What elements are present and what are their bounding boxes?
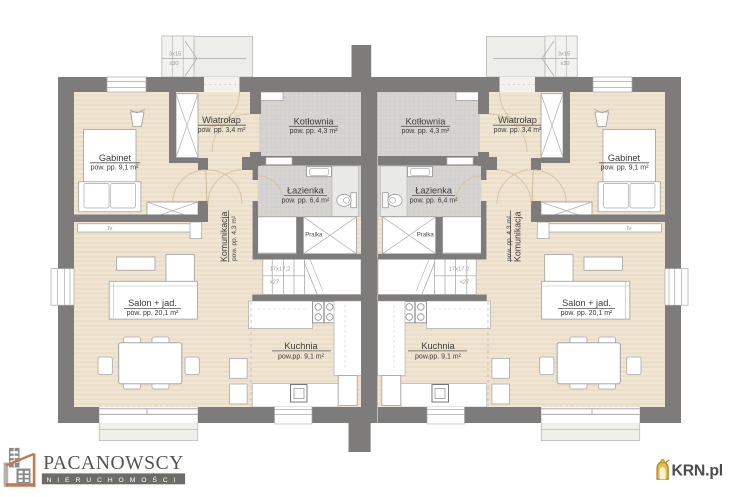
svg-text:Gabinet: Gabinet <box>99 153 132 163</box>
svg-text:Pralka: Pralka <box>417 233 435 239</box>
svg-text:pow. pp. 3,4 m²: pow. pp. 3,4 m² <box>198 127 247 134</box>
svg-text:17x17,2: 17x17,2 <box>449 267 470 273</box>
svg-text:pow.pp. 9,1 m²: pow.pp. 9,1 m² <box>415 354 462 361</box>
svg-text:Salon + jad.: Salon + jad. <box>562 298 611 308</box>
svg-text:17x17,2: 17x17,2 <box>270 267 291 273</box>
svg-text:x27: x27 <box>270 280 279 286</box>
svg-text:pow. pp. 20,1 m²: pow. pp. 20,1 m² <box>127 310 179 317</box>
svg-text:pow. pp. 6,4 m²: pow. pp. 6,4 m² <box>281 197 330 204</box>
svg-text:Komunikacja: Komunikacja <box>219 212 229 262</box>
svg-text:pow. pp. 9,1 m²: pow. pp. 9,1 m² <box>601 165 650 172</box>
svg-text:Komunikacja: Komunikacja <box>512 212 522 262</box>
svg-text:Kuchnia: Kuchnia <box>421 341 455 351</box>
svg-text:Kuchnia: Kuchnia <box>284 341 318 351</box>
svg-text:x30: x30 <box>560 61 569 67</box>
svg-text:pow. pp. 6,4 m²: pow. pp. 6,4 m² <box>410 197 459 204</box>
svg-text:pow. pp. 4,3 m²: pow. pp. 4,3 m² <box>231 215 238 261</box>
svg-text:Łazienka: Łazienka <box>415 186 453 196</box>
svg-text:pow. pp. 4,3 m²: pow. pp. 4,3 m² <box>401 128 450 135</box>
svg-text:KRN.pl: KRN.pl <box>672 463 723 480</box>
svg-text:Wiatrołap: Wiatrołap <box>498 115 537 125</box>
svg-text:pow. pp. 3,4 m²: pow. pp. 3,4 m² <box>494 127 543 134</box>
svg-text:tv: tv <box>627 226 632 232</box>
svg-text:x30: x30 <box>169 61 178 67</box>
svg-text:pow. pp. 4,3 m²: pow. pp. 4,3 m² <box>290 128 339 135</box>
svg-text:Łazienka: Łazienka <box>287 186 325 196</box>
svg-text:Salon + jad.: Salon + jad. <box>128 298 177 308</box>
svg-text:Pralka: Pralka <box>305 233 323 239</box>
svg-text:tv: tv <box>108 226 113 232</box>
svg-text:Wiatrołap: Wiatrołap <box>202 115 241 125</box>
svg-text:PACANOWSCY: PACANOWSCY <box>43 453 184 474</box>
svg-text:Kotłownia: Kotłownia <box>294 116 335 126</box>
svg-text:Gabinet: Gabinet <box>608 153 641 163</box>
svg-text:x27: x27 <box>460 280 469 286</box>
svg-text:3x15: 3x15 <box>558 52 571 58</box>
svg-text:NIERUCHOMOŚCI: NIERUCHOMOŚCI <box>47 475 180 484</box>
svg-text:pow. pp. 9,1 m²: pow. pp. 9,1 m² <box>91 165 140 172</box>
svg-text:pow. pp. 4,3 m²: pow. pp. 4,3 m² <box>506 215 513 261</box>
svg-text:3x15: 3x15 <box>169 52 182 58</box>
svg-text:pow.pp. 9,1 m²: pow.pp. 9,1 m² <box>278 354 325 361</box>
svg-text:Kotłownia: Kotłownia <box>405 116 446 126</box>
svg-text:pow. pp. 20,1 m²: pow. pp. 20,1 m² <box>561 310 613 317</box>
